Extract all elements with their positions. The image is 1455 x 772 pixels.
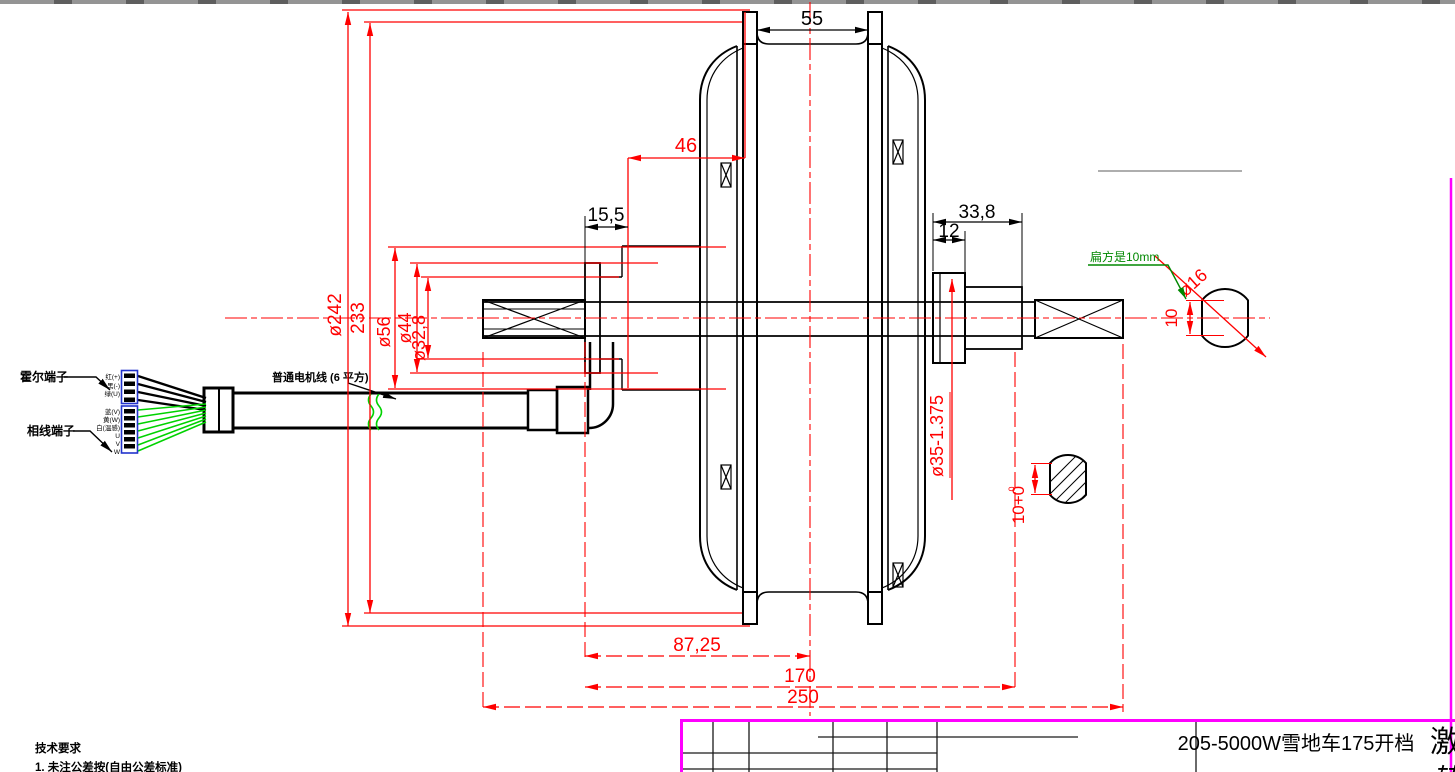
wire-label: 蓝(V) [105, 407, 120, 416]
dim-hub-offset: 15,5 [588, 205, 625, 226]
dim-dia-hub: ø56 [374, 316, 394, 347]
dim-axle-length: 250 [787, 687, 819, 708]
watermark-text: 激 [1430, 726, 1455, 759]
wire-label: U [115, 433, 120, 440]
wire-label: V [116, 441, 121, 448]
dim-stator-offset: 46 [675, 135, 697, 157]
dim-rim-width: 55 [801, 8, 823, 30]
cad-drawing-page: 红(+) 黑(-) 绿(U) 蓝(V) 黄(W) 白(温感) U V W 霍尔端… [0, 0, 1455, 772]
dim-bearing-to-center: 87,25 [673, 635, 721, 656]
drawing-title: 205-5000W雪地车175开档 [1178, 732, 1415, 755]
title-block-table: 205-5000W雪地车175开档 激 转 [680, 719, 1455, 772]
wire-label: 黄(W) [103, 415, 120, 424]
tech-notes-line1: 1. 未注公差按(自由公差标准) [35, 760, 182, 772]
dim-dia-tube: ø32,8 [409, 315, 429, 361]
phase-terminal-label: 相线端子 [27, 423, 75, 438]
red-dimensions [342, 10, 1266, 707]
dim-freewheel-thread: ø35-1.375 [927, 395, 947, 477]
cable-break-symbol [369, 394, 374, 430]
motor-cable-label: 普通电机线 (6 平方) [272, 370, 369, 384]
dim-shoulder-span: 170 [784, 666, 816, 687]
hall-terminal-label: 霍尔端子 [20, 369, 68, 384]
tech-notes: 技术要求 1. 未注公差按(自由公差标准) [35, 741, 182, 772]
left-axle-thread [483, 300, 585, 338]
dimension-texts: 55 15,5 46 33,8 12 ø242 233 ø56 ø44 ø32,… [325, 8, 1211, 708]
wire-fan: 红(+) 黑(-) 绿(U) 蓝(V) 黄(W) 白(温感) U V W [96, 371, 206, 457]
wire-labels: 红(+) 黑(-) 绿(U) 蓝(V) 黄(W) 白(温感) U V W [96, 372, 121, 456]
dim-dia-rotor: ø242 [325, 293, 346, 336]
dim-dia-rim: 233 [348, 302, 369, 334]
flat-note-label: 扁方是10mm [1090, 249, 1159, 264]
engineering-drawing: 红(+) 黑(-) 绿(U) 蓝(V) 黄(W) 白(温感) U V W 霍尔端… [0, 0, 1455, 772]
wire-label: W [114, 449, 121, 456]
right-axle-thread [1035, 300, 1123, 338]
dim-right-length: 33,8 [959, 202, 996, 223]
dim-shaft-flat: 10 [1162, 309, 1181, 328]
wire-label: 绿(U) [104, 389, 120, 398]
wire-label: 红(+) [105, 372, 120, 381]
bolt-section-boxes [721, 140, 903, 587]
hall-connector [122, 371, 138, 404]
centerlines [225, 2, 1270, 716]
tech-notes-heading: 技术要求 [35, 741, 81, 755]
terminal-labels: 霍尔端子 相线端子 普通电机线 (6 平方) [20, 369, 396, 452]
top-frame-bar [0, 0, 1455, 4]
watermark-text-2: 转 [1437, 763, 1455, 772]
black-dimensions [585, 30, 1022, 300]
dim-keyway-tol: 0 [1007, 486, 1017, 491]
dim-right-step: 12 [938, 221, 959, 242]
wire-label: 白(温感) [96, 423, 120, 432]
phase-connector [122, 406, 138, 453]
flat-annotation: 扁方是10mm [1088, 249, 1186, 299]
